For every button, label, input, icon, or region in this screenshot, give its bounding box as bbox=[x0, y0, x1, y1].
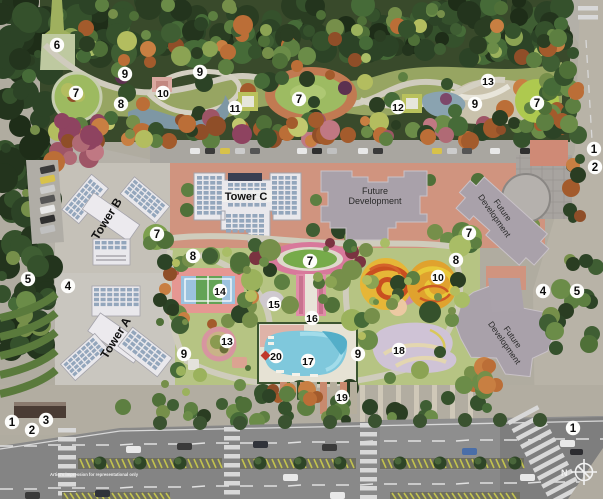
svg-text:4: 4 bbox=[540, 286, 547, 298]
svg-text:10: 10 bbox=[157, 88, 169, 100]
svg-text:Tower C: Tower C bbox=[225, 191, 268, 203]
svg-text:11: 11 bbox=[229, 103, 240, 115]
svg-text:7: 7 bbox=[466, 228, 472, 240]
svg-text:13: 13 bbox=[221, 336, 233, 348]
svg-text:6: 6 bbox=[54, 40, 60, 52]
svg-text:7: 7 bbox=[154, 229, 160, 241]
svg-text:1: 1 bbox=[591, 144, 598, 156]
svg-text:16: 16 bbox=[306, 313, 318, 325]
svg-text:3: 3 bbox=[43, 415, 49, 427]
svg-text:9: 9 bbox=[355, 349, 361, 361]
svg-text:2: 2 bbox=[592, 162, 598, 174]
svg-text:18: 18 bbox=[393, 345, 405, 357]
svg-text:9: 9 bbox=[181, 349, 187, 361]
svg-text:7: 7 bbox=[534, 98, 540, 110]
svg-text:10: 10 bbox=[432, 272, 444, 284]
svg-text:8: 8 bbox=[190, 251, 197, 263]
svg-text:Development: Development bbox=[348, 196, 402, 206]
svg-text:13: 13 bbox=[482, 76, 494, 88]
svg-text:1: 1 bbox=[570, 423, 577, 435]
svg-text:7: 7 bbox=[73, 88, 79, 100]
svg-text:17: 17 bbox=[302, 356, 314, 368]
svg-text:19: 19 bbox=[336, 392, 348, 404]
svg-text:12: 12 bbox=[392, 102, 404, 114]
svg-text:Future: Future bbox=[362, 186, 388, 196]
svg-text:15: 15 bbox=[268, 299, 280, 311]
svg-text:14: 14 bbox=[214, 286, 226, 298]
svg-text:Artist's impression for repres: Artist's impression for representational… bbox=[50, 472, 139, 477]
svg-text:8: 8 bbox=[453, 255, 460, 267]
svg-text:1: 1 bbox=[9, 417, 16, 429]
svg-text:9: 9 bbox=[197, 67, 203, 79]
svg-text:7: 7 bbox=[307, 256, 313, 268]
svg-text:20: 20 bbox=[270, 351, 282, 363]
svg-text:N: N bbox=[561, 468, 568, 478]
svg-text:8: 8 bbox=[118, 99, 125, 111]
svg-text:4: 4 bbox=[65, 281, 72, 293]
svg-text:2: 2 bbox=[29, 425, 35, 437]
svg-text:5: 5 bbox=[25, 274, 32, 286]
svg-text:9: 9 bbox=[472, 99, 478, 111]
svg-text:7: 7 bbox=[296, 94, 302, 106]
svg-text:5: 5 bbox=[574, 286, 581, 298]
svg-text:9: 9 bbox=[122, 69, 128, 81]
